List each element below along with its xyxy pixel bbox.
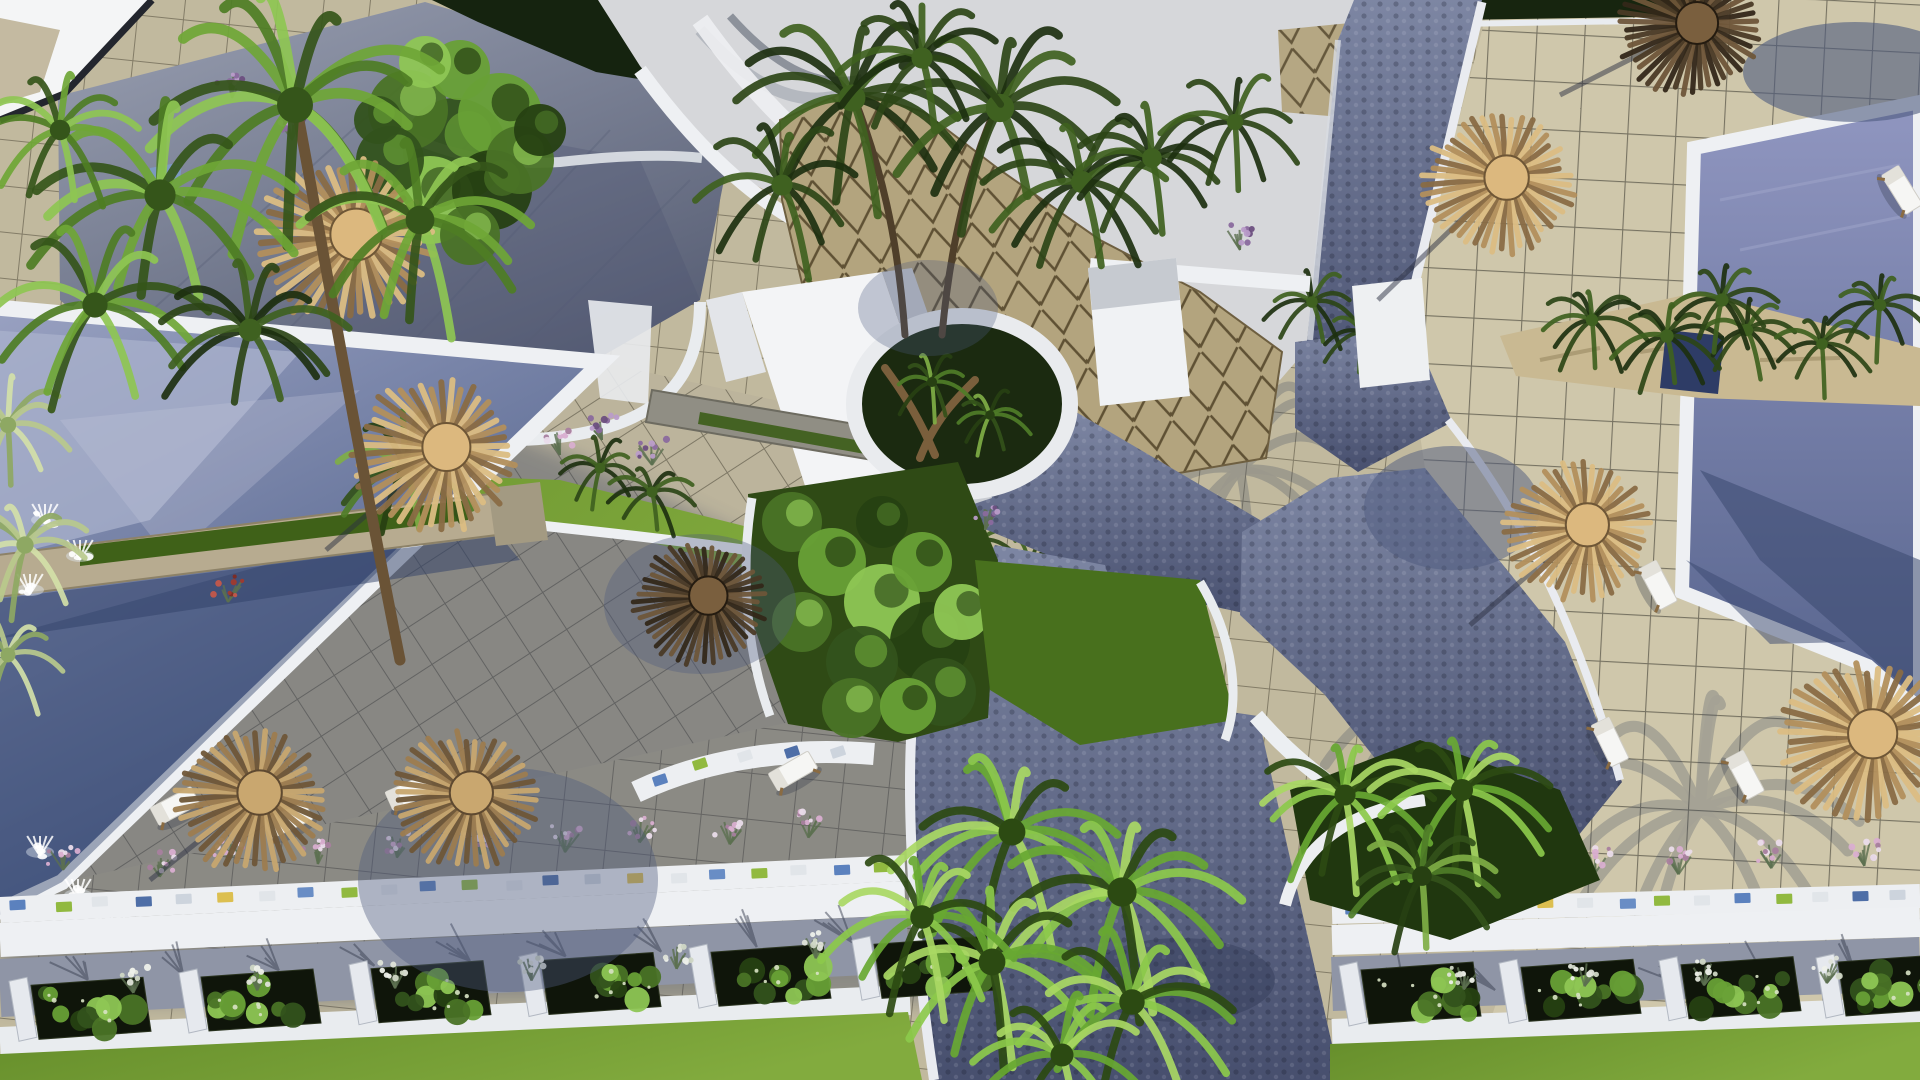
flower-bloom [1756,859,1760,863]
flower-bloom [1469,978,1474,983]
planter-flower-dot [1576,993,1580,997]
flower-bloom [1836,973,1843,980]
planter-flower-dot [52,998,57,1003]
mosaic-tile [1654,895,1670,905]
flower-bloom [215,580,222,587]
flower-bloom [1700,959,1706,965]
flower-bloom [544,437,551,444]
palm-crown-center [0,417,16,433]
flower-bloom [1570,976,1574,980]
planter-flower-dot [1775,990,1779,994]
umbrella-cap [422,423,470,471]
planter-flower-dot [256,1002,260,1006]
flower-bloom [614,414,620,420]
flower-bloom [254,965,261,972]
flower-bloom [646,833,652,839]
flower-bloom [265,981,271,987]
planter-shrub [1856,991,1871,1006]
planter-shrub [771,970,788,987]
flower-bloom [558,430,562,434]
flower-bloom [1450,966,1454,970]
flower-bloom [1713,971,1718,976]
flower-bloom [147,865,153,871]
palm-crown-center [1142,148,1162,168]
flower-bloom [728,826,733,831]
planter-flower-dot [218,999,221,1002]
planter-flower-dot [1742,1002,1746,1006]
flower-bloom [313,844,318,849]
planter-shrub [1609,971,1635,997]
planter-shrub [407,994,424,1011]
planter-shrub [627,972,642,987]
palm-crown-center [910,905,934,929]
flower-bloom [643,445,649,451]
flower-bloom [144,964,151,971]
planter-shrub [1775,971,1790,986]
palm-crown-center [1715,293,1728,306]
flower-bloom [400,970,405,975]
planter-flower-dot [233,1005,238,1010]
mosaic-tile [297,887,313,898]
mosaic-tile [1694,895,1710,905]
planter-flower-dot [755,969,759,973]
flower-bloom [1822,967,1827,972]
flower-bloom [170,868,175,873]
planter-shrub [1738,974,1755,991]
flower-bloom [317,839,321,843]
flower-bloom [68,845,73,850]
flower-bloom [120,973,125,978]
flower-bloom [588,415,594,421]
flower-bloom [565,428,572,435]
mosaic-tile [92,896,108,907]
umbrella-cap [237,770,281,814]
mosaic-tile [1852,891,1868,901]
white-kiosk-b [1352,278,1430,388]
flower-bloom [1848,844,1855,851]
mosaic-tile [1812,892,1828,902]
flower-bloom [1455,980,1460,985]
mosaic-tile [1734,893,1750,903]
planter-flower-dot [1906,992,1910,996]
flower-bloom [46,862,50,866]
planter-flower-dot [1765,986,1770,991]
planter-shrub [1689,996,1714,1021]
mosaic-tile [1577,898,1593,908]
planter-flower-dot [103,1010,107,1014]
flower-bloom [240,579,244,583]
flower-bloom [251,976,257,982]
flower-bloom [1447,973,1451,977]
flower-bloom [228,591,232,595]
shrub-planter-box [1499,959,1644,1023]
flower-bloom [325,842,331,848]
flower-bloom [130,968,136,974]
flower-bloom [988,520,993,525]
flower-bloom [816,815,823,822]
flower-bloom [802,940,808,946]
flower-bloom [1834,956,1839,961]
flower-bloom [1828,959,1833,964]
flower-bloom [1698,971,1702,975]
flower-bloom [663,436,670,443]
planter-shrub [1861,972,1878,989]
planter-flower-dot [776,980,780,984]
flower-bloom [377,960,383,966]
umbrella-round-shadow [858,260,998,356]
palm-crown-center [646,486,657,497]
planter-flower-dot [455,990,460,995]
planter-flower-dot [1433,995,1437,999]
planter-flower-dot [1906,970,1911,975]
palm-crown-center [1107,877,1136,906]
flower-bloom [1574,967,1579,972]
planter-flower-dot [1437,1003,1441,1007]
flower-bloom [384,972,389,977]
mosaic-tile [56,901,72,912]
flower-bloom [663,955,669,961]
flower-bloom [1238,240,1244,246]
flower-bloom [994,509,1000,515]
flower-bloom [233,593,237,597]
bush-highlight [916,540,943,567]
flower-bloom [1705,968,1712,975]
mosaic-tile [709,869,725,880]
bush-highlight [796,600,823,627]
mosaic-tile [671,873,687,884]
planter-shrub [1431,967,1457,993]
flower-bloom [127,979,134,986]
flower-bloom [1599,862,1606,869]
flower-bloom [590,426,595,431]
mosaic-tile [259,891,275,902]
flower-bloom [1595,859,1600,864]
flower-bloom [392,975,399,982]
umbrella-cap [1676,2,1718,44]
flower-bloom [318,847,323,852]
flower-bloom [1455,973,1460,978]
palm-crown-center [1451,779,1473,801]
flower-bloom [1772,847,1779,854]
umbrella-cap [1566,503,1609,546]
bush-highlight [935,667,966,698]
bush-highlight [535,111,558,134]
bush-highlight [454,48,481,75]
flower-bloom [1695,976,1700,981]
flower-bloom [639,817,644,822]
planter-flower-dot [609,990,613,994]
palm-crown-center [50,120,70,140]
flower-bloom [650,821,654,825]
palm-crown-center [979,949,1006,976]
mosaic-tile [175,894,191,905]
mosaic-tile [1620,898,1636,908]
flower-bloom [817,942,823,948]
flower-bloom [1812,966,1816,970]
planter-shrub [219,991,245,1017]
flower-bloom [257,979,262,984]
palm-crown-center [1816,338,1828,350]
flower-bloom [1244,239,1250,245]
palm-crown-center [406,206,435,235]
mosaic-tile [1776,894,1792,904]
screenshot-root [0,0,1920,1080]
planter-shrub [1460,1005,1477,1022]
palm-frond [8,425,11,485]
planter-shrub [117,994,148,1025]
flower-bloom [973,516,977,520]
flower-bloom [677,948,682,953]
palm-crown-center [1119,989,1144,1014]
palm-crown-center [144,179,175,210]
flower-bloom [1607,851,1614,858]
palm-crown-center [1227,114,1243,130]
mosaic-tile [217,892,233,903]
planter-flower-dot [1538,989,1541,992]
palm-frond [1822,344,1825,398]
flower-bloom [1863,839,1870,846]
palm-crown-center [771,174,792,195]
flower-bloom [1228,222,1234,228]
umbrella-cap [1484,155,1528,199]
mosaic-tile [341,887,357,898]
aerial-resort-render [0,0,1920,1080]
flower-bloom [1853,851,1859,857]
flower-bloom [569,442,576,449]
umbrella-cap [450,771,493,814]
flower-bloom [1592,849,1599,856]
flower-bloom [652,828,657,833]
bush-highlight [877,503,900,526]
flower-bloom [638,441,643,446]
flower-bloom [233,575,237,579]
flower-bloom [1588,970,1595,977]
flower-bloom [1876,847,1881,852]
umbrella-cap [689,576,727,614]
planter-shrub [280,1003,305,1028]
flower-bloom [1685,850,1691,856]
planter-flower-dot [647,986,650,989]
planter-flower-dot [622,982,625,985]
planter-shrub [754,982,776,1004]
flower-bloom [380,968,386,974]
flower-bloom [1706,964,1711,969]
flower-bloom [1678,854,1683,859]
planter-flower-dot [774,965,779,970]
palm-crown-center [1586,314,1598,326]
mosaic-tile [834,865,850,876]
planter-shrub [1713,981,1735,1003]
planter-shrub [737,973,752,988]
flower-bloom [736,824,741,829]
flower-bloom [135,976,140,981]
palm-crown-center [1,648,16,663]
bush-highlight [786,500,813,527]
flower-bloom [799,808,806,815]
flower-bloom [684,960,688,964]
planter-flower-dot [259,1013,262,1016]
planter-shrub [639,966,661,988]
flower-bloom [1827,972,1831,976]
flower-bloom [1695,959,1699,963]
flower-bloom [1776,839,1783,846]
planter-flower-dot [1411,984,1414,987]
planter-flower-dot [1377,978,1380,981]
planter-flower-dot [1382,982,1387,987]
flower-bloom [712,832,717,837]
flower-bloom [1244,230,1251,237]
bush-highlight [855,635,887,667]
planter-shrub [52,1006,69,1023]
palm-crown-center [1050,1043,1073,1066]
palm-crown-center [1660,329,1673,342]
flower-bloom [1870,854,1877,861]
palm-crown-center [1306,296,1318,308]
planter-flower-dot [1553,995,1558,1000]
flower-bloom [1580,967,1584,971]
flower-bloom [810,942,817,949]
planter-flower-dot [1579,1003,1582,1006]
palm-crown-center [985,410,995,420]
bush-highlight [902,685,927,710]
flower-bloom [1763,849,1768,854]
planter-flower-dot [447,1005,450,1008]
palm-crown-center [1412,866,1432,886]
mosaic-tile [751,868,767,879]
flower-bloom [649,440,656,447]
planter-flower-dot [1755,975,1758,978]
planter-shrub [96,995,122,1021]
planter-shrub [444,999,470,1025]
palm-crown-center [927,377,937,387]
planter-flower-dot [764,980,767,983]
planter-flower-dot [47,994,50,997]
flower-bloom [231,73,235,77]
umbrella-cap [1848,709,1897,758]
flower-bloom [608,413,614,419]
flower-bloom [63,851,68,856]
flower-bloom [1669,846,1675,852]
planter-flower-dot [594,994,598,998]
planter-flower-dot [432,1006,436,1010]
flower-bloom [983,511,989,517]
mosaic-tile [9,900,25,911]
flower-bloom [390,962,396,968]
palm-crown-center [911,47,932,68]
palm-crown-center [595,463,606,474]
flower-bloom [601,416,608,423]
flower-bloom [816,930,822,936]
mosaic-tile [136,896,152,907]
flower-bloom [810,932,815,937]
flower-bloom [809,818,813,822]
bush-highlight [825,537,856,568]
flower-bloom [157,849,163,855]
palm-crown-center [16,536,33,553]
flower-bloom [637,455,641,459]
palm-crown-center [277,87,313,123]
flower-bloom [650,454,655,459]
flower-bloom [47,849,51,853]
palm-crown-center [1874,299,1886,311]
flower-bloom [1666,858,1673,865]
mosaic-tile [790,865,806,876]
planter-flower-dot [816,972,819,975]
flower-bloom [1607,847,1611,851]
bush-highlight [846,686,873,713]
planter-shrub [785,988,802,1005]
palm-crown-center [239,319,262,342]
flower-bloom [1677,846,1684,853]
flower-bloom [1769,855,1775,861]
flower-bloom [231,579,237,585]
planter-flower-dot [1891,996,1895,1000]
planter-flower-dot [609,969,614,974]
palm-frond [1235,122,1238,190]
flower-bloom [732,833,736,837]
planter-flower-dot [465,994,469,998]
flower-bloom [210,591,217,598]
palm-crown-center [82,292,107,317]
flower-bloom [1249,226,1255,232]
planter-flower-dot [1757,1001,1760,1004]
planter-flower-dot [107,1018,111,1022]
palm-crown-center [999,819,1026,846]
flower-bloom [75,848,81,854]
planter-shrub [624,987,649,1012]
flower-bloom [813,938,817,942]
flower-bloom [1757,840,1763,846]
bush-highlight [956,591,981,616]
planter-flower-dot [81,999,84,1002]
palm-crown-center [1334,784,1355,805]
flower-bloom [801,821,806,826]
mosaic-tile [1889,890,1905,900]
flower-bloom [1449,980,1453,984]
